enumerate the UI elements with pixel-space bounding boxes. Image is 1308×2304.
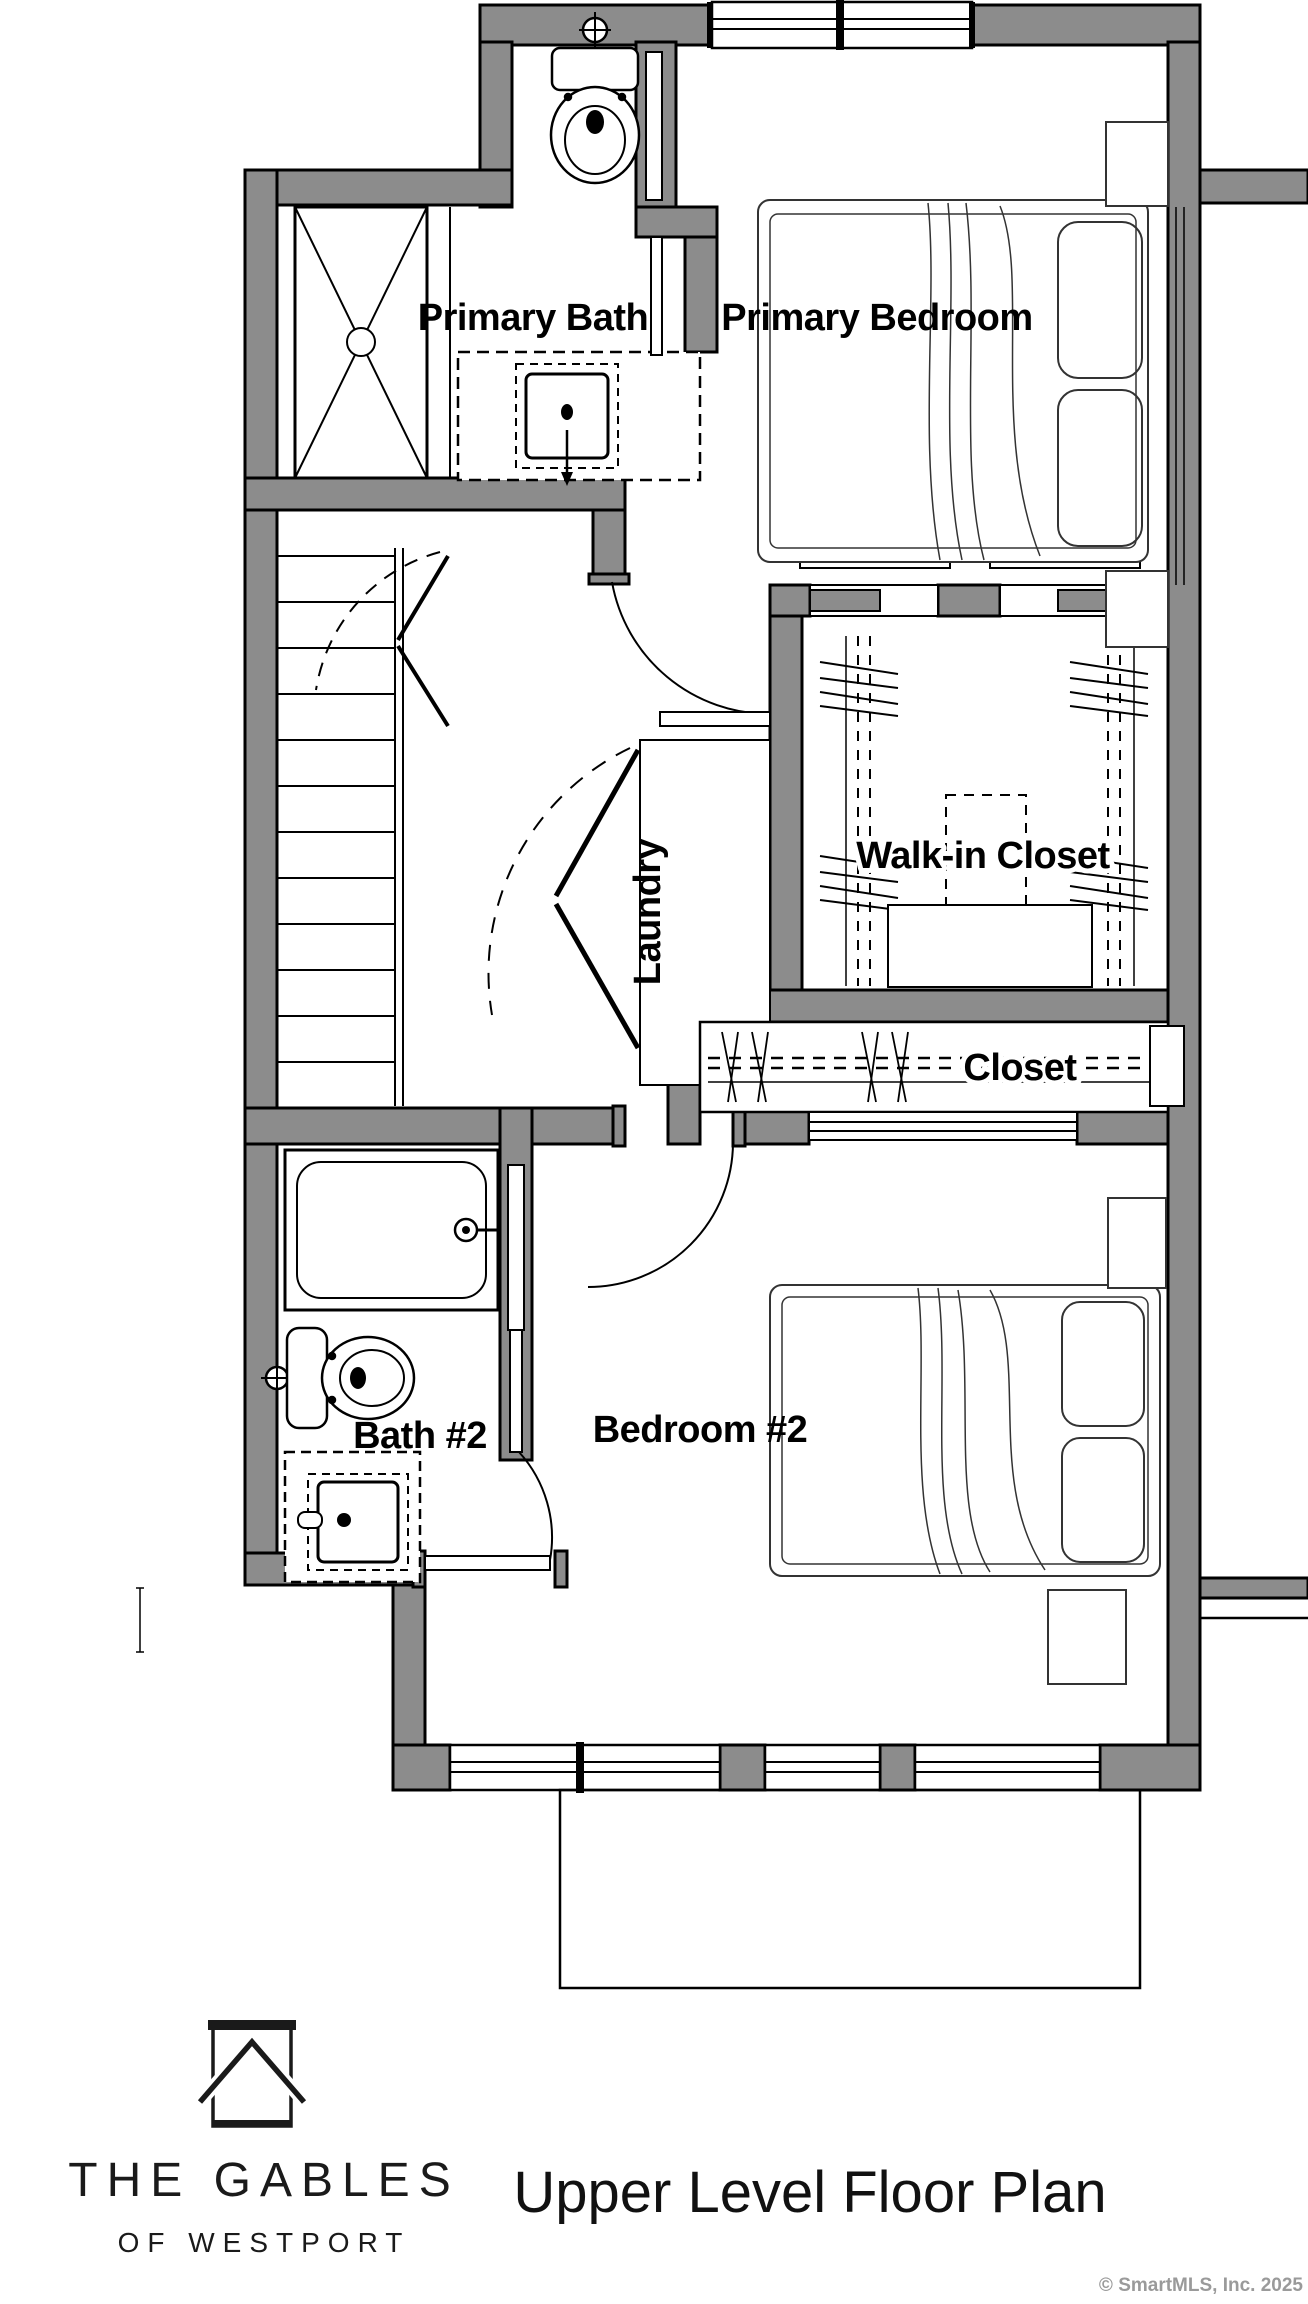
room-label-primary-bath: Primary Bath bbox=[418, 297, 649, 339]
bathtub bbox=[285, 1150, 498, 1310]
floor-plan-page: Primary Bath Primary Bedroom Walk-in Clo… bbox=[0, 0, 1308, 2304]
primary-vanity-sink bbox=[458, 352, 700, 486]
room-label-laundry: Laundry bbox=[627, 838, 669, 985]
hall-bifold-door bbox=[316, 552, 448, 726]
primary-bed bbox=[758, 200, 1148, 562]
vanity-sink-2 bbox=[285, 1452, 420, 1582]
toilet-2 bbox=[261, 1328, 414, 1428]
deck-outline bbox=[560, 1790, 1140, 1988]
primary-bedroom-door bbox=[612, 582, 770, 714]
floor-plan-drawing: Primary Bath Primary Bedroom Walk-in Clo… bbox=[0, 0, 1308, 2304]
room-label-walk-in-closet: Walk-in Closet bbox=[856, 835, 1110, 877]
room-label-bedroom-2: Bedroom #2 bbox=[593, 1409, 808, 1451]
bedroom2-door bbox=[588, 1142, 733, 1287]
shower bbox=[295, 207, 450, 478]
bottom-windows bbox=[450, 1742, 1100, 1793]
room-label-bath-2: Bath #2 bbox=[353, 1415, 487, 1457]
margin-tick bbox=[136, 1588, 144, 1652]
brand-subname: OF WESTPORT bbox=[118, 2227, 411, 2258]
top-window bbox=[707, 0, 975, 50]
plan-title: Upper Level Floor Plan bbox=[513, 2160, 1106, 2225]
room-label-primary-bedroom: Primary Bedroom bbox=[721, 297, 1032, 339]
bedroom2-bed bbox=[770, 1285, 1160, 1576]
walk-in-closet-dresser bbox=[888, 905, 1092, 987]
brand-name: THE GABLES bbox=[68, 2154, 459, 2207]
stairs bbox=[278, 548, 403, 1106]
house-logo-icon bbox=[200, 2020, 304, 2127]
brand-logo: THE GABLES OF WESTPORT bbox=[68, 2020, 459, 2258]
copyright-text: © SmartMLS, Inc. 2025 bbox=[1099, 2275, 1304, 2296]
room-label-closet: Closet bbox=[963, 1047, 1077, 1089]
